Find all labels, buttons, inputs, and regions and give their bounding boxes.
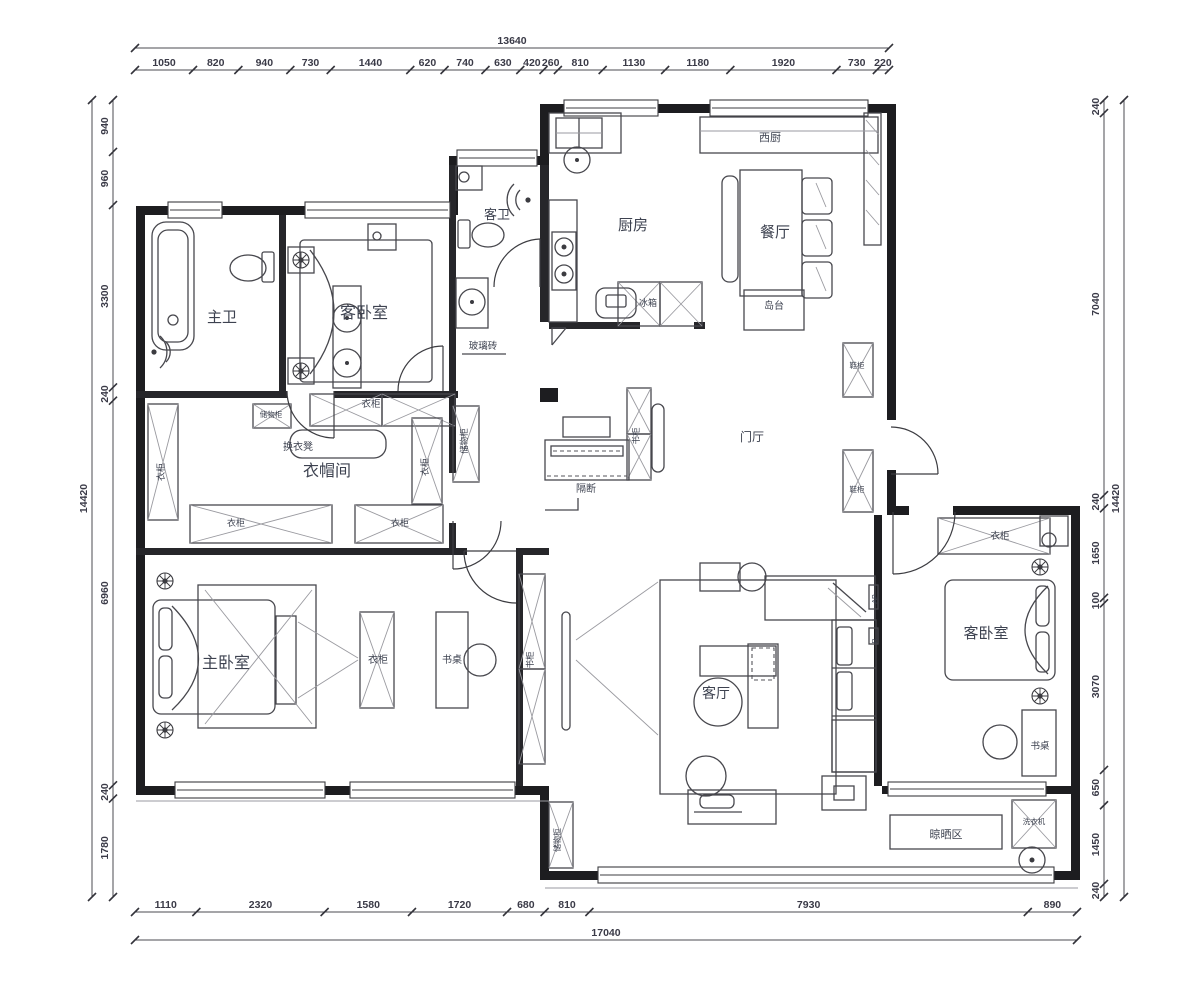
furniture [1040,516,1068,546]
furniture [834,786,854,800]
dim-label: 730 [302,57,320,69]
room-kitchen: 厨房 [618,217,648,234]
dim-chain-bottom: 1110232015801720680810793089017040 [131,899,1081,944]
label-drying-area: 晾晒区 [930,827,963,841]
label-partition: 隔断 [576,482,596,495]
furniture [368,224,396,250]
detail-line [576,660,658,735]
dim-chain-right: 240704024016501003070650145024014420 [1090,96,1128,901]
walls-layer [136,104,1080,880]
dim-label: 7040 [1090,292,1102,316]
room-foyer: 门厅 [740,429,764,444]
detail-curve [552,328,566,345]
label-shoe-cabinet-1: 鞋柜 [850,360,865,370]
dim-label: 3070 [1090,675,1102,699]
dim-label: 420 [523,57,541,69]
interior-wall [516,548,549,555]
toilet-bowl [230,255,266,281]
label-wardrobe-top: 衣柜 [361,398,381,410]
detail-line [833,583,866,612]
label-bookcase-corridor: 书柜 [525,651,535,669]
dimension-chains-layer: 1050820940730144062074063042026081011301… [78,35,1128,944]
dim-label: 1650 [1090,541,1102,565]
shower-head [151,349,156,354]
furniture [700,117,878,153]
detail-curve [160,336,167,368]
dim-total: 13640 [497,35,526,47]
shower-head [525,197,530,202]
dim-label: 1920 [772,57,796,69]
dim-label: 240 [99,385,111,403]
room-guest-bedroom-nw: 客卧室 [340,304,388,322]
dim-label: 220 [874,57,892,69]
dim-label: 1580 [357,899,381,911]
furniture-circle [738,563,766,591]
windows-layer [168,100,1054,883]
dim-label: 740 [456,57,474,69]
label-west-kitchen: 西厨 [759,131,781,144]
room-dining: 餐厅 [760,224,790,241]
fixture-dot [345,361,349,365]
dim-total: 14420 [78,484,90,513]
detail-line [576,582,658,640]
door-arc [453,521,501,569]
furniture [832,720,876,772]
plant-symbol [157,573,173,589]
furniture-circle [983,725,1017,759]
interior-wall [449,165,456,331]
label-bookcase-foyer: 书柜 [631,427,641,445]
dim-label: 960 [99,170,111,188]
furniture-circle [464,644,496,676]
dim-label: 890 [1044,899,1062,911]
plant-symbol [1032,559,1048,575]
wall-segment [874,515,882,786]
room-master-bedroom: 主卧室 [202,654,250,672]
furniture [700,646,776,676]
dim-label: 940 [256,57,274,69]
wall-segment [540,795,549,880]
label-wardrobe-master: 衣柜 [368,653,388,666]
furniture [700,795,734,808]
door-arc [494,239,540,287]
dim-label: 680 [517,899,535,911]
furniture-circle [459,172,469,182]
interior-wall [136,548,467,555]
furniture [802,262,832,298]
label-storage-tall: 储物柜 [459,428,469,454]
dim-label: 620 [419,57,437,69]
furniture [262,252,274,282]
furniture [159,656,172,698]
detail-line [816,183,826,207]
furniture [765,576,875,620]
door-arc [398,346,443,391]
detail-line [866,180,879,195]
wall-segment [136,206,145,795]
label-glass-brick: 玻璃砖 [469,340,498,352]
room-cloakroom: 衣帽间 [303,462,351,480]
dim-label: 6960 [99,581,111,605]
dim-label: 940 [99,117,111,135]
interior-wall [540,165,549,322]
door-arc [464,551,516,603]
dim-label: 240 [1090,493,1102,511]
plant-symbol [1032,688,1048,704]
fixture-dot [562,272,567,277]
detail-line [816,225,826,249]
plant-symbol [293,363,309,379]
label-wardrobe-east: 衣柜 [990,530,1010,542]
furniture-circle [373,232,381,240]
fixture-dot [562,245,567,250]
dim-label: 1130 [622,57,645,69]
furniture [722,176,738,282]
dim-label: 1450 [1090,833,1102,857]
dim-chain-left: 94096033002406960240178014420 [78,96,117,901]
detail-curve [545,498,578,510]
dim-label: 1720 [448,899,472,911]
wall-segment [887,104,896,420]
dim-label: 810 [558,899,576,911]
label-wardrobe-right: 衣柜 [419,458,430,476]
furniture [822,776,866,810]
detail-line [816,267,826,291]
dim-label: 1110 [155,899,177,911]
dim-label: 240 [99,783,111,801]
label-island: 岛台 [764,299,784,312]
dim-label: 730 [848,57,866,69]
dim-total: 17040 [591,927,620,939]
label-wardrobe-bl: 衣柜 [227,517,245,528]
dim-label: 650 [1090,779,1102,797]
wall-segment [953,506,1080,515]
dim-label: 240 [1090,882,1102,900]
dim-label: 1050 [152,57,176,69]
door-arc [891,427,938,474]
furniture [837,672,852,710]
dim-label: 1440 [359,57,383,69]
furniture [1036,632,1049,672]
room-guest-bedroom-e: 客卧室 [963,625,1008,642]
floor-plan-canvas: 1050820940730144062074063042026081011301… [0,0,1200,1000]
dim-label: 240 [1090,98,1102,116]
label-wardrobe-left: 衣柜 [155,463,166,481]
label-wardrobe-br: 衣柜 [391,517,409,528]
furniture [159,608,172,650]
room-living: 客厅 [702,685,730,701]
dim-label: 1780 [99,836,111,860]
fixture-dot [470,300,474,304]
detail-line [866,150,879,165]
interior-wall [449,331,456,391]
dim-label: 260 [542,57,560,69]
furniture-layer [136,113,1078,888]
furniture [458,220,470,248]
dim-label: 3300 [99,284,111,308]
furniture-circle [1042,533,1056,547]
toilet-bowl [472,223,504,247]
plant-symbol [293,252,309,268]
interior-wall [279,215,286,391]
door-arc [893,512,955,574]
room-labels-layer: 主卫客卧室客卫厨房西厨餐厅岛台门厅衣帽间主卧室客厅客卧室玻璃砖换衣凳储物柜衣柜衣… [155,131,1050,852]
furniture [652,404,664,472]
furniture [606,295,626,307]
wall-segment [887,506,909,515]
floor-plan-svg: 1050820940730144062074063042026081011301… [0,0,1200,1000]
label-desk-east: 书桌 [1030,740,1050,752]
label-r-box: R [872,638,879,643]
fixture-dot [575,158,579,162]
dim-label: 2320 [249,899,273,911]
label-fridge: 冰箱 [639,297,657,308]
detail-curve [172,606,199,710]
dim-label: 810 [572,57,590,69]
wall-segment [540,388,558,402]
furniture [549,200,577,322]
detail-line [298,622,358,658]
furniture [802,220,832,256]
label-desk-master: 书桌 [442,653,462,666]
room-master-bath: 主卫 [207,309,237,326]
interior-wall [136,391,287,398]
detail-curve [516,190,520,210]
furniture [837,627,852,665]
dim-label: 630 [494,57,512,69]
label-changing-stool: 换衣凳 [283,440,313,453]
dim-label: 820 [207,57,225,69]
furniture-circle [168,315,178,325]
furniture [552,232,576,290]
furniture [562,612,570,730]
label-shoe-cabinet-2: 鞋柜 [850,484,865,494]
label-ap-box: AP [872,594,879,604]
detail-curve [1025,586,1048,674]
dim-label: 7930 [797,899,821,911]
detail-line [866,210,879,225]
detail-line [298,660,358,698]
furniture [802,178,832,214]
furniture [563,417,610,437]
wall-segment [1071,506,1080,880]
plant-symbol [157,722,173,738]
dim-chain-top: 1050820940730144062074063042026081011301… [131,35,893,74]
dim-label: 1180 [686,57,709,69]
label-storage-corridor: 储物柜 [552,828,562,852]
furniture [700,563,740,591]
coffee-table-dashed [752,648,774,680]
detail-line [866,120,879,135]
room-guest-bath: 客卫 [484,207,510,222]
dim-total: 14420 [1110,484,1122,513]
fixture-dot [1030,858,1035,863]
label-storage-small: 储物柜 [260,409,283,419]
wall-segment [540,104,549,165]
label-washing-machine: 洗衣机 [1023,816,1046,826]
